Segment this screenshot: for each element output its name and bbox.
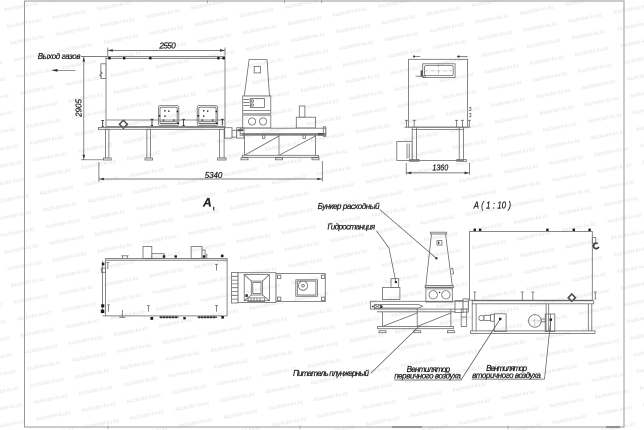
svg-text:А ( 1 : 10 ): А ( 1 : 10 ) bbox=[473, 200, 511, 211]
svg-text:вторичного воздуха: вторичного воздуха bbox=[472, 371, 541, 380]
svg-text:1360: 1360 bbox=[432, 164, 448, 173]
svg-text:Гидростанция: Гидростанция bbox=[327, 223, 376, 232]
svg-text:Бункер расходный: Бункер расходный bbox=[318, 202, 381, 211]
svg-text:первичного воздуха: первичного воздуха bbox=[394, 372, 461, 381]
svg-text:Выход газов: Выход газов bbox=[38, 52, 81, 61]
svg-text:2905: 2905 bbox=[75, 99, 84, 118]
svg-text:5340: 5340 bbox=[205, 171, 223, 180]
svg-text:2550: 2550 bbox=[158, 42, 176, 51]
svg-text:А: А bbox=[202, 196, 212, 210]
svg-text:Питатель плунжерный: Питатель плунжерный bbox=[293, 369, 369, 378]
